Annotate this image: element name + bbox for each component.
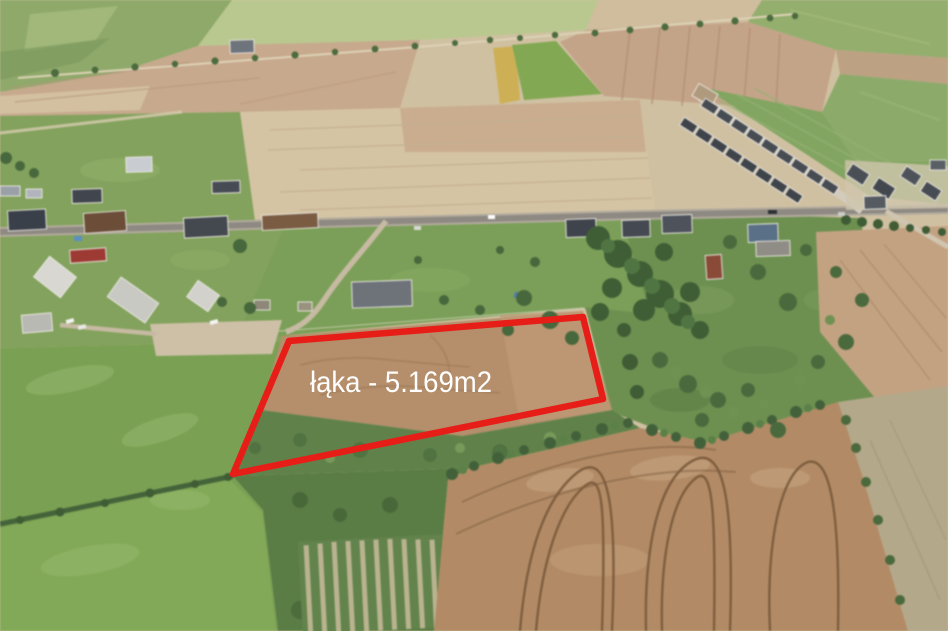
field-plowed-center bbox=[240, 100, 655, 221]
striped-crop-patch bbox=[298, 534, 453, 631]
plot-area-label: łąka - 5.169m2 bbox=[310, 366, 492, 399]
landscape bbox=[0, 0, 948, 631]
aerial-photo-canvas: łąka - 5.169m2 bbox=[0, 0, 948, 631]
aerial-photo: łąka - 5.169m2 bbox=[0, 0, 948, 631]
gravel-patch bbox=[150, 320, 282, 356]
